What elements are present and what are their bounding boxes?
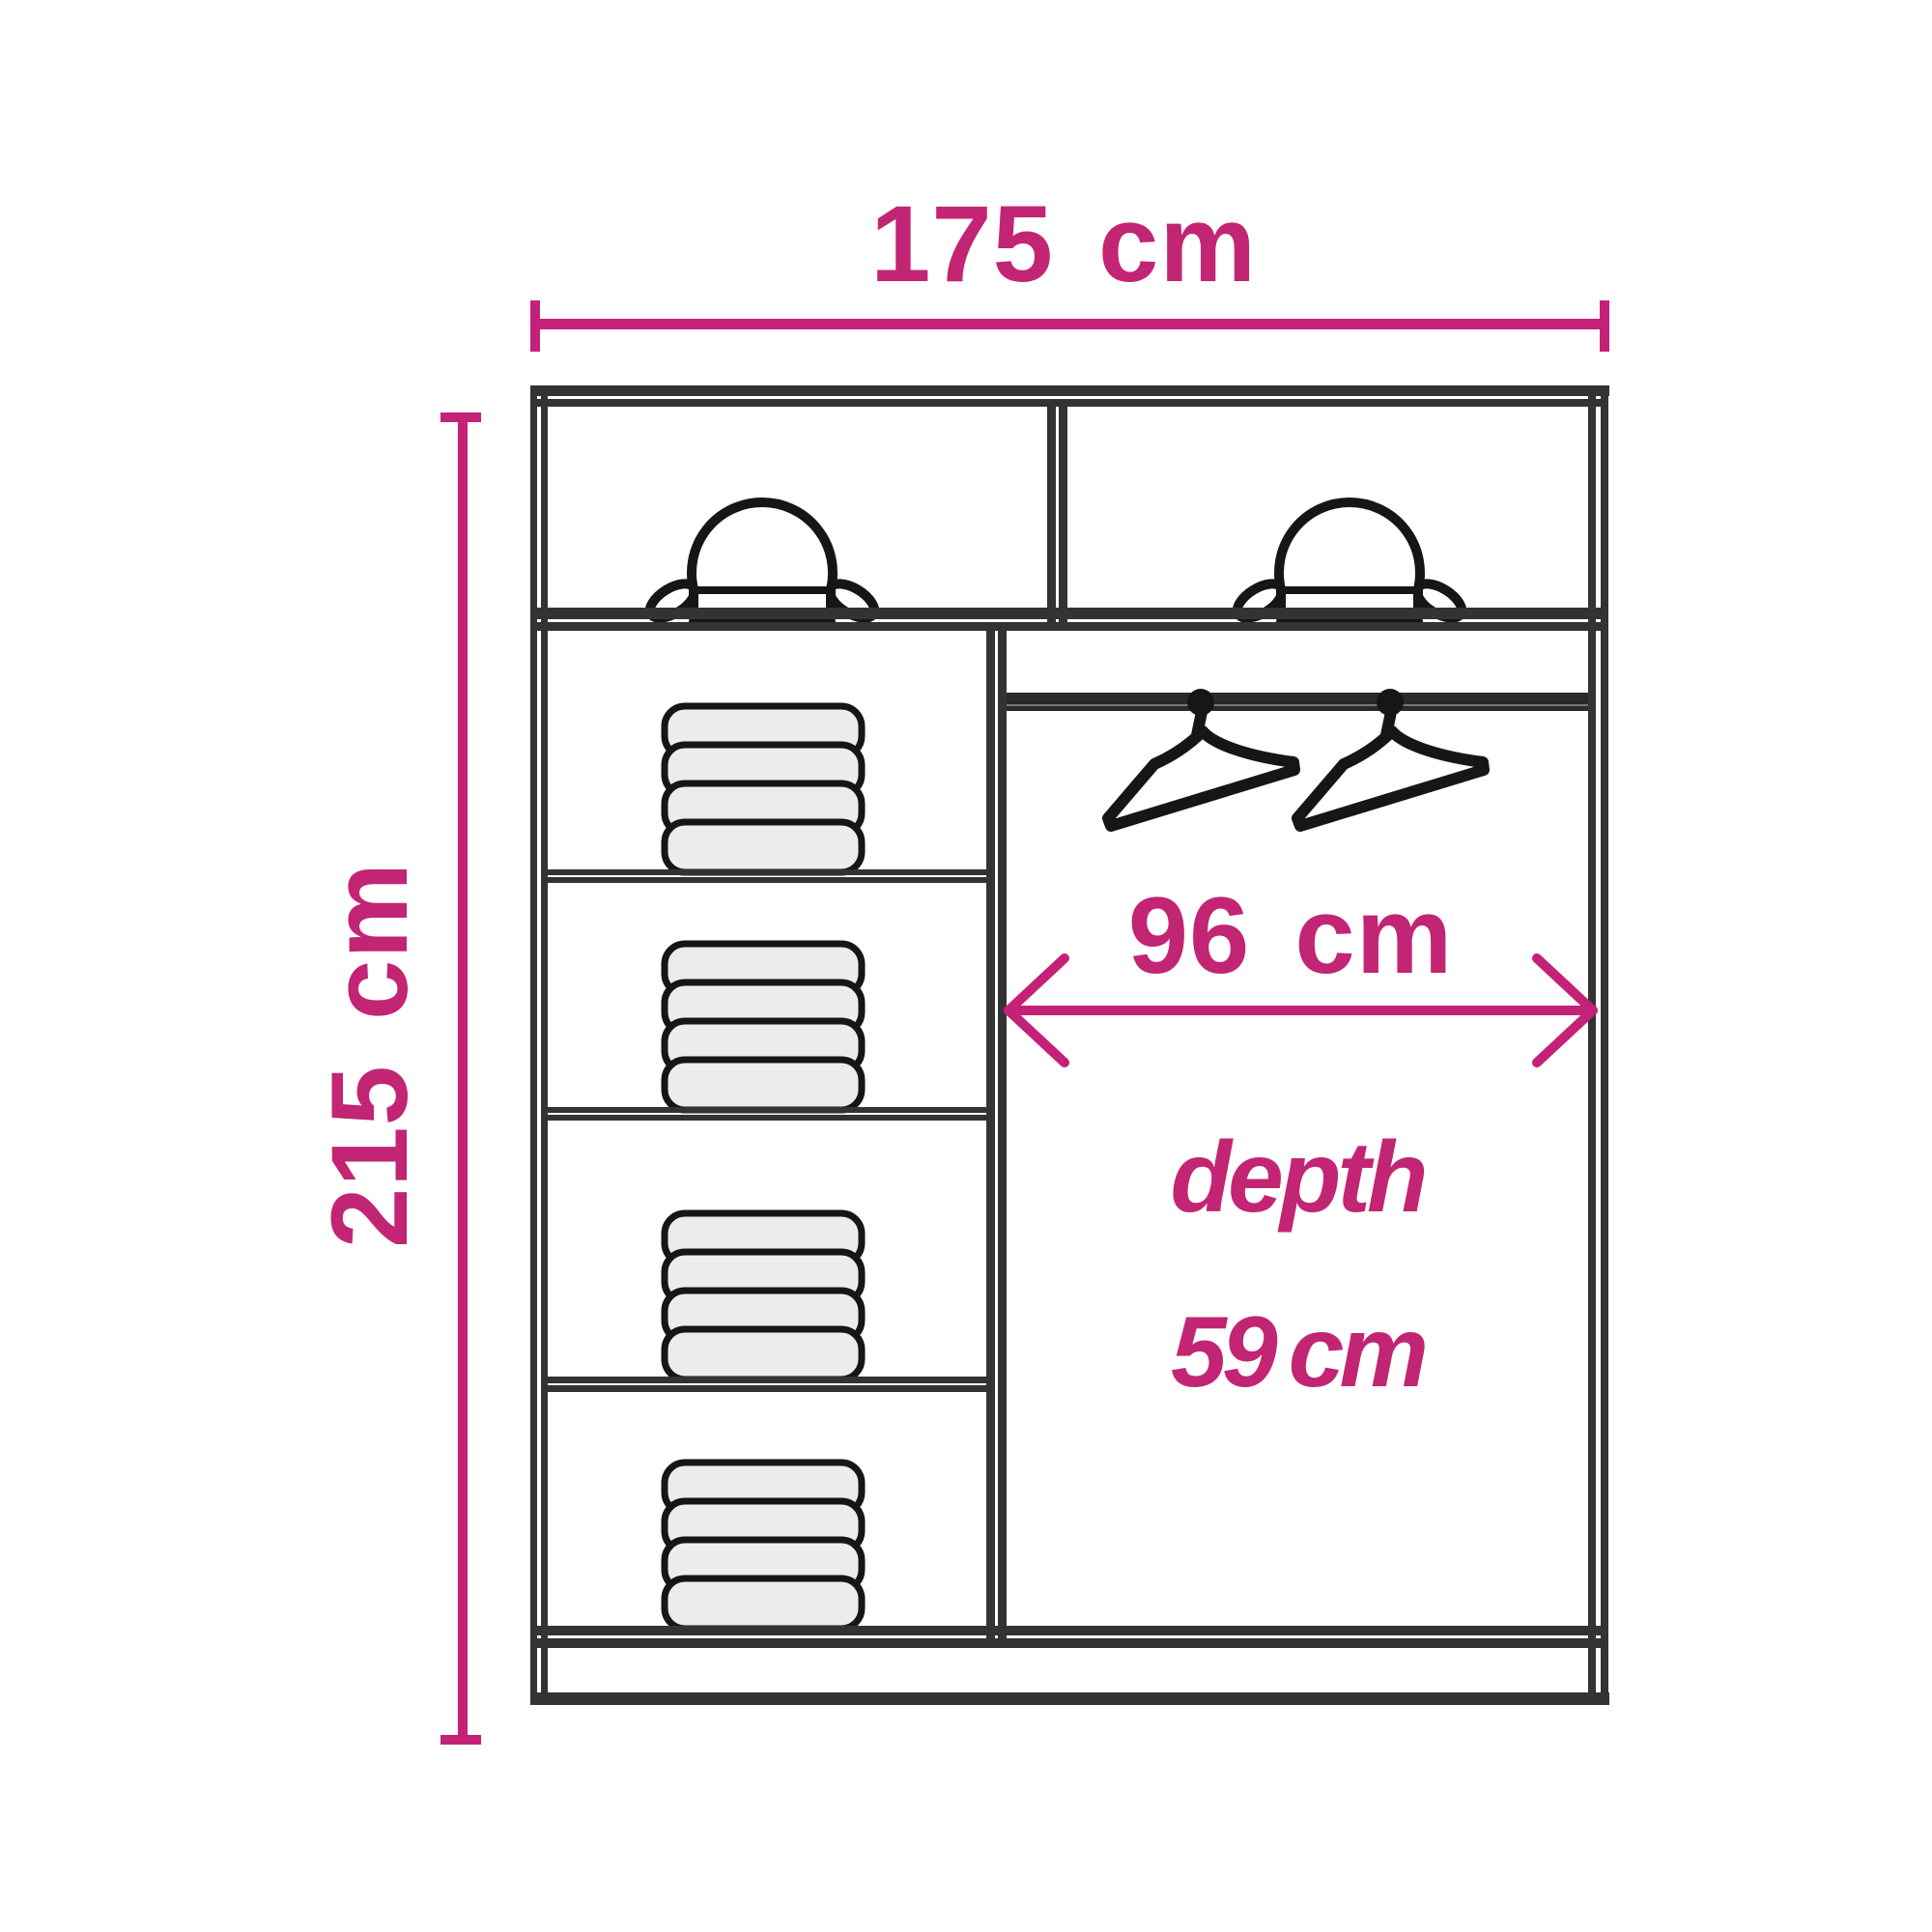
- svg-text:96 cm: 96 cm: [1128, 875, 1454, 996]
- svg-text:175 cm: 175 cm: [870, 184, 1257, 304]
- svg-text:depth: depth: [1170, 1122, 1425, 1234]
- svg-text:59 cm: 59 cm: [1171, 1296, 1425, 1408]
- svg-text:215 cm: 215 cm: [309, 862, 430, 1248]
